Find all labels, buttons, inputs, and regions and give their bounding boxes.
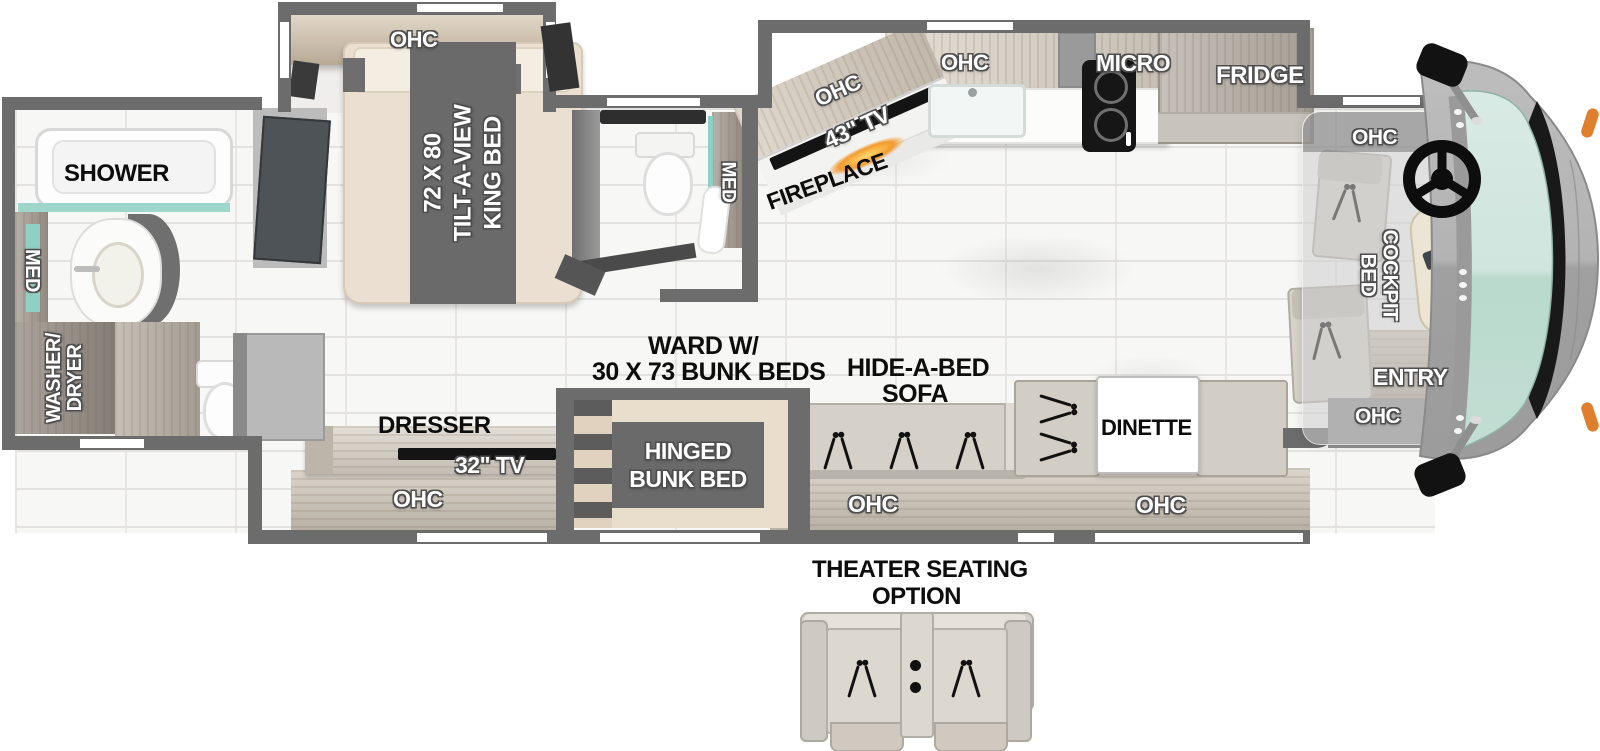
ward-label-line2: 30 X 73 BUNK BEDS [592, 358, 825, 387]
rear-step-wall [248, 436, 262, 544]
cockpit-bed-label-line2: BED [1356, 230, 1378, 321]
rear-med-label-box: MED [8, 230, 54, 310]
kitchen-sink [928, 84, 1026, 138]
bedroom-tv-panel [253, 116, 331, 264]
theater-label-line1: THEATER SEATING [812, 556, 1028, 584]
bunk-label-line1: HINGED [629, 437, 746, 465]
tv32-label: 32" TV [455, 452, 524, 479]
window-bedroom-top [417, 4, 503, 12]
theater-console [900, 612, 934, 738]
ward-label-line1: WARD W/ [648, 332, 758, 361]
ward-cabinet-edge [233, 333, 247, 437]
rear-bath-top-wall [2, 97, 262, 110]
kitchen-ohc-sink-label: OHC [941, 50, 988, 76]
cupholder-icon [910, 682, 921, 693]
rear-med-label: MED [19, 249, 42, 292]
cockpit-bed-label-line1: COCKPIT [1378, 230, 1400, 321]
seat-belt-icon [946, 658, 986, 700]
theater-footrest-left [830, 722, 904, 751]
bunk-runner: HINGED BUNK BED [612, 422, 764, 508]
window-rearbath-bottom [80, 439, 144, 448]
dresser-ohc-label: OHC [393, 486, 443, 513]
midbath-counter [600, 110, 706, 124]
window-bedroom-left [280, 22, 289, 78]
theater-arm-left [800, 620, 828, 742]
door-bottom-4 [1095, 533, 1303, 542]
seat-belt-icon [950, 430, 990, 472]
kitchen-left-wall [758, 20, 772, 108]
floorplan-canvas: SHOWER MED WASHER/ DRYER OHC 72 X 80 TIL… [0, 0, 1600, 751]
shower-glass [18, 203, 230, 212]
theater-seating-unit [800, 612, 1030, 750]
seat-belt-icon [1037, 389, 1079, 429]
vanity-basin [92, 242, 144, 308]
sofa-label-line1: HIDE-A-BED [847, 354, 989, 383]
burner-2-icon [1094, 108, 1128, 142]
bunk-right-wall [788, 388, 810, 535]
seat-belt-icon [842, 658, 882, 700]
theater-arm-right [1004, 620, 1032, 742]
midbath-toilet-bowl [643, 152, 693, 216]
king-bed-label-line1: 72 X 80 [418, 105, 448, 242]
dresser-label: DRESSER [378, 412, 491, 440]
clearance-light-top-icon [1580, 107, 1600, 139]
midbath-med-label: MED [716, 162, 738, 203]
bedroom-ohc-label: OHC [390, 27, 437, 53]
king-bed-label-line3: KING BED [478, 105, 508, 242]
bedroom-tv-left-icon [289, 60, 320, 99]
theater-label-line2: OPTION [872, 583, 961, 611]
seat-belt-icon [884, 430, 924, 472]
micro-label: MICRO [1096, 50, 1170, 77]
bunk-top-wall [556, 388, 810, 400]
cupholder-icon [910, 660, 921, 671]
door-bottom-2 [600, 533, 760, 542]
sofa-label-line2: SOFA [882, 380, 948, 409]
bunk-left-wall [556, 388, 574, 535]
door-bottom-3 [1018, 533, 1054, 542]
front-cap [1270, 20, 1600, 520]
cockpit-ohc-top-label: OHC [1352, 126, 1397, 150]
clearance-light-bottom-icon [1580, 401, 1600, 433]
window-midbath-top [607, 98, 700, 106]
kitchen-top-wall [758, 20, 1310, 33]
shower-label: SHOWER [64, 160, 169, 188]
cooktop-handle-icon [1126, 132, 1131, 146]
midbath-bottom-wall [660, 289, 758, 302]
king-bed-runner: 72 X 80 TILT-A-VIEW KING BED [410, 42, 516, 304]
window-kitchen-top [927, 22, 1013, 30]
bunk-label-line2: BUNK BED [629, 465, 746, 493]
entry-label: ENTRY [1373, 364, 1448, 391]
dinette-ohc-label: OHC [1136, 492, 1186, 519]
door-bottom-1 [417, 533, 547, 542]
sofa-ohc-label: OHC [848, 491, 898, 518]
vanity-faucet [74, 266, 100, 272]
seat-belt-icon [818, 430, 858, 472]
washer-label-box: WASHER/ DRYER [10, 326, 120, 430]
dinette-label: DINETTE [1101, 415, 1192, 441]
entry-ohc-label: OHC [1355, 405, 1400, 429]
washer-label-line1: WASHER/ [44, 333, 65, 423]
theater-footrest-right [934, 722, 1008, 751]
kitchen-faucet-icon [968, 88, 977, 97]
washer-label-line2: DRYER [65, 333, 86, 423]
kitchen-ohc-angled-label: OHC [811, 69, 865, 112]
bunk-ladder [574, 400, 612, 528]
midbath-partition [572, 110, 600, 262]
bed-accent-left [343, 58, 365, 92]
cockpit-bed-label-box: COCKPIT BED [1348, 200, 1408, 350]
seat-belt-icon [1037, 427, 1079, 467]
king-bed-label-line2: TILT-A-VIEW [448, 105, 478, 242]
bath-cabinet [115, 322, 200, 436]
midbath-med-label-box: MED [705, 150, 749, 214]
